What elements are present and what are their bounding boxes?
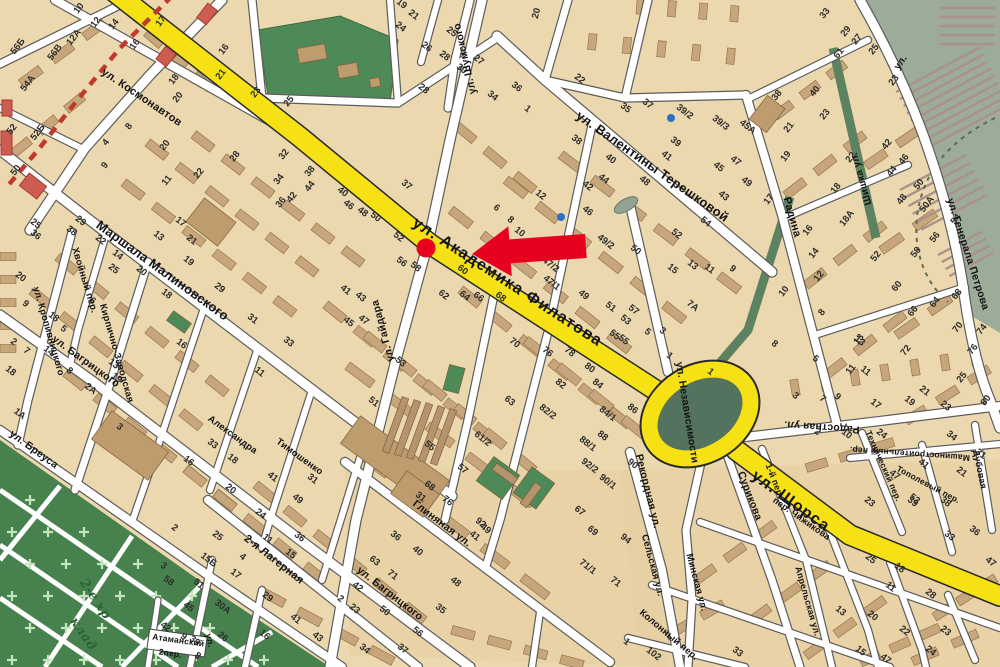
- map-shape: [726, 48, 736, 65]
- map-shape: [2, 100, 12, 116]
- map-shape: [0, 253, 16, 261]
- location-dot-marker: [417, 239, 436, 258]
- map-shape: [691, 44, 701, 61]
- blue-poi-dot: [667, 114, 675, 122]
- map-viewport[interactable]: 56Б56В54А52Б525012А101214161718208491122…: [0, 0, 1000, 667]
- map-shape: [667, 0, 676, 17]
- map-shape: [622, 37, 632, 54]
- blue-poi-dot: [557, 213, 565, 221]
- map-shape: [369, 77, 380, 88]
- map-shape: [730, 5, 739, 22]
- map-shape: [698, 3, 707, 20]
- map-shape: [587, 33, 597, 50]
- map-shape: [0, 299, 16, 307]
- map-shape: [657, 41, 667, 58]
- map-canvas[interactable]: 56Б56В54А52Б525012А101214161718208491122…: [0, 0, 1000, 667]
